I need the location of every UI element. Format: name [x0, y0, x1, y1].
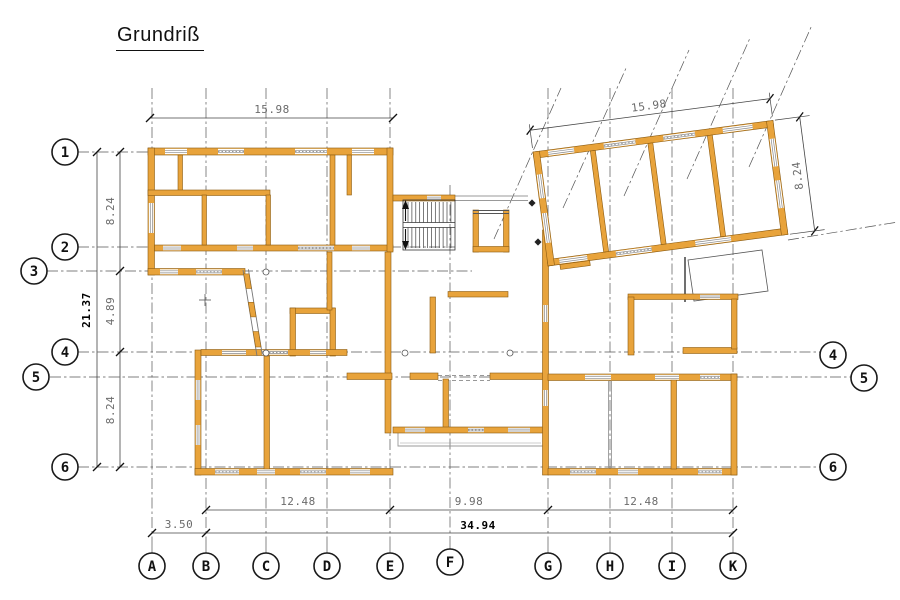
dim-left-total: 21.37	[80, 292, 93, 328]
window-opening	[655, 375, 679, 380]
grid-bubble-5-left: 5	[23, 364, 49, 390]
axis-e-wall	[385, 252, 391, 433]
grid-bubble-I: I	[659, 553, 685, 579]
window-opening	[427, 196, 441, 200]
grid-bubble-label: 5	[32, 370, 40, 386]
dim-text: 3.50	[165, 518, 194, 531]
floorplan-canvas: 15.988.2415.9812.489.9812.483.5034.948.2…	[0, 0, 900, 600]
wall	[290, 308, 296, 356]
window-opening	[543, 390, 547, 406]
window-opening	[149, 203, 154, 233]
grid-bubble-label: G	[544, 559, 552, 575]
window-opening	[352, 246, 370, 251]
window-opening	[700, 295, 720, 299]
grid-bubble-label: 6	[829, 460, 837, 476]
wall	[178, 155, 183, 191]
window-opening	[196, 425, 200, 445]
window-opening	[405, 428, 425, 432]
wall	[430, 297, 436, 353]
wall	[683, 348, 737, 354]
grid-bubble-3-left: 3	[21, 258, 47, 284]
details	[199, 199, 542, 356]
grid-bubble-label: 2	[61, 240, 69, 256]
elevator-left-wall	[473, 210, 479, 252]
dim-text: 12.48	[623, 495, 659, 508]
window-opening	[350, 469, 370, 474]
grid-bubble-label: K	[729, 559, 738, 575]
grid-bubble-2-left: 2	[52, 234, 78, 260]
diamond-marker	[528, 199, 535, 206]
window-opening	[257, 469, 275, 474]
dim-wing-depth: 8.24	[790, 161, 807, 191]
wall	[628, 294, 738, 300]
window-opening	[163, 246, 181, 251]
grid-bubble-6-left: 6	[52, 454, 78, 480]
dim-text: 8.24	[104, 396, 117, 425]
glazed-diagonal-wall	[243, 269, 262, 356]
grid-bubble-label: H	[606, 559, 614, 575]
grid-bubble-label: I	[668, 559, 676, 575]
grid-bubble-C: C	[253, 553, 279, 579]
circle-marker	[263, 269, 269, 275]
grid-bubble-5-right: 5	[851, 365, 877, 391]
wall	[330, 308, 336, 356]
grid-bubble-label: 4	[61, 345, 69, 361]
window-opening	[310, 350, 326, 354]
grid-bubble-label: E	[386, 559, 394, 575]
wing-ne-wall	[648, 143, 666, 245]
rotated-wing: 15.988.24	[524, 79, 825, 272]
window-opening	[237, 246, 253, 251]
elevator-right-wall	[504, 210, 510, 252]
grid-bubble-K: K	[720, 553, 746, 579]
dim-top-width: 15.98	[254, 103, 290, 116]
grid-bubble-F: F	[437, 549, 463, 575]
wall	[327, 252, 332, 310]
dim-bottom-total: 34.94	[460, 519, 496, 532]
grid-bubble-label: 6	[61, 460, 69, 476]
wall	[443, 379, 449, 432]
window-opening	[222, 350, 246, 354]
wall	[628, 297, 634, 355]
walls	[148, 148, 738, 475]
grid-bubble-label: D	[323, 559, 331, 575]
wall	[347, 155, 352, 195]
dim-wing-width: 15.98	[630, 97, 667, 115]
wing-ne-wall	[766, 120, 787, 235]
wall	[148, 190, 270, 196]
grid-bubble-A: A	[139, 553, 165, 579]
grid-bubble-label: A	[148, 559, 157, 575]
grid-bubble-6-right: 6	[820, 454, 846, 480]
window-opening	[543, 305, 547, 322]
circle-marker	[263, 350, 269, 356]
wall	[202, 195, 207, 245]
window-opening	[165, 149, 187, 154]
diamond-marker	[534, 238, 541, 245]
wall	[264, 356, 270, 469]
grid-bubble-1-left: 1	[52, 139, 78, 165]
grid-bubble-G: G	[535, 553, 561, 579]
dim-text: 8.24	[104, 197, 117, 226]
wing-ne-wall	[590, 150, 608, 252]
wall	[448, 292, 508, 298]
wing-sw-left-wall	[195, 350, 201, 475]
grid-bubble-4-right: 4	[820, 342, 846, 368]
terrace-outline	[398, 433, 543, 446]
grid-bubble-label: 1	[61, 145, 69, 161]
wall	[330, 155, 335, 245]
wing-se-right-wall	[731, 374, 737, 475]
annex-outline	[688, 250, 768, 301]
wing-ne-wall	[707, 135, 725, 237]
grid-bubble-E: E	[377, 553, 403, 579]
grid-bubble-D: D	[314, 553, 340, 579]
grid-bubble-H: H	[597, 553, 623, 579]
wing-axis-line	[788, 222, 898, 240]
wall	[490, 373, 548, 380]
grid-bubble-label: 3	[30, 264, 38, 280]
grid-bubble-label: B	[202, 559, 210, 575]
axis-g-wall	[543, 230, 549, 475]
floorplan-page: Grundriß 15.988.2415.9812.489.9812.483.5…	[0, 0, 900, 600]
window-opening	[700, 375, 720, 380]
grid-bubble-label: 5	[860, 371, 868, 387]
window-opening	[352, 149, 374, 154]
window-opening	[585, 375, 611, 380]
grid-bubble-label: 4	[829, 348, 837, 364]
window-opening	[160, 269, 178, 274]
grid-bubble-4-left: 4	[52, 339, 78, 365]
grid-bubble-B: B	[193, 553, 219, 579]
wall	[266, 195, 271, 245]
wing-nw-right-wall	[387, 148, 393, 252]
dim-text: 9.98	[455, 495, 484, 508]
circle-marker	[507, 350, 513, 356]
window-opening	[508, 428, 530, 432]
circle-marker	[402, 350, 408, 356]
wall	[732, 299, 738, 349]
wall	[347, 373, 392, 380]
wall	[410, 373, 438, 380]
window-opening	[618, 469, 638, 474]
wing-axis-line	[749, 25, 812, 167]
dim-text: 4.89	[104, 297, 117, 326]
wall	[671, 380, 677, 469]
grid-bubble-label: F	[446, 555, 454, 571]
grid-bubble-label: C	[262, 559, 270, 575]
window-opening	[196, 380, 200, 400]
dim-text: 12.48	[280, 495, 316, 508]
elevator-bottom-wall	[473, 247, 509, 253]
